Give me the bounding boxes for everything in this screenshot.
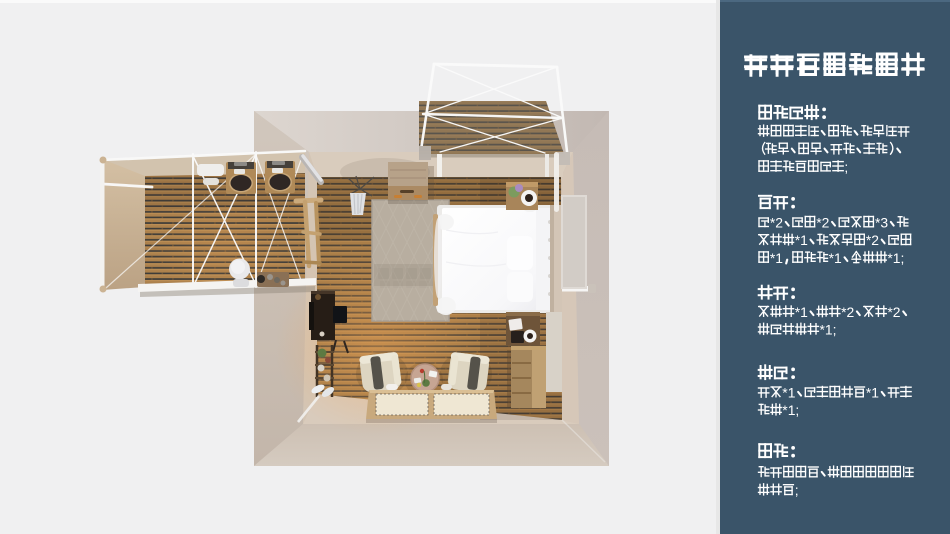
svg-text:*1: *1 bbox=[770, 250, 783, 266]
svg-text:*2: *2 bbox=[816, 214, 829, 230]
svg-text:*1;: *1; bbox=[782, 402, 799, 418]
svg-text:*2: *2 bbox=[841, 304, 854, 320]
svg-text:*1: *1 bbox=[782, 384, 795, 400]
svg-text:*1: *1 bbox=[829, 250, 842, 266]
svg-text:*2: *2 bbox=[887, 304, 900, 320]
svg-text:*2: *2 bbox=[770, 214, 783, 230]
svg-text:*1;: *1; bbox=[820, 322, 837, 338]
svg-text:;: ; bbox=[795, 482, 799, 498]
svg-text:*1: *1 bbox=[795, 232, 808, 248]
svg-text:*1: *1 bbox=[866, 384, 879, 400]
svg-text:*1: *1 bbox=[795, 304, 808, 320]
svg-text:*3: *3 bbox=[875, 214, 888, 230]
svg-text:*2: *2 bbox=[866, 232, 879, 248]
svg-text:*1;: *1; bbox=[887, 250, 904, 266]
svg-text:;: ; bbox=[844, 159, 848, 175]
